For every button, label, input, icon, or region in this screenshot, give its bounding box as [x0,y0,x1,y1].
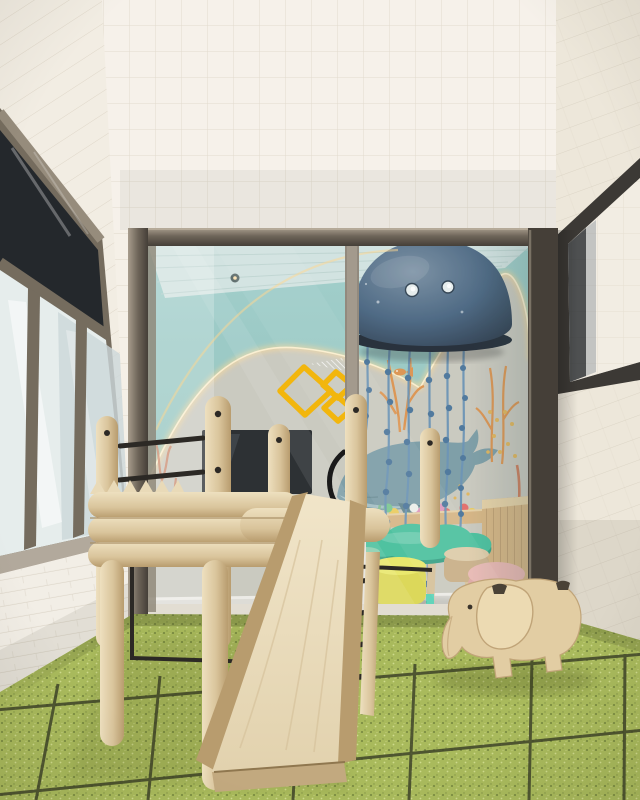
playroom-render [0,0,640,800]
vignette [0,0,640,800]
